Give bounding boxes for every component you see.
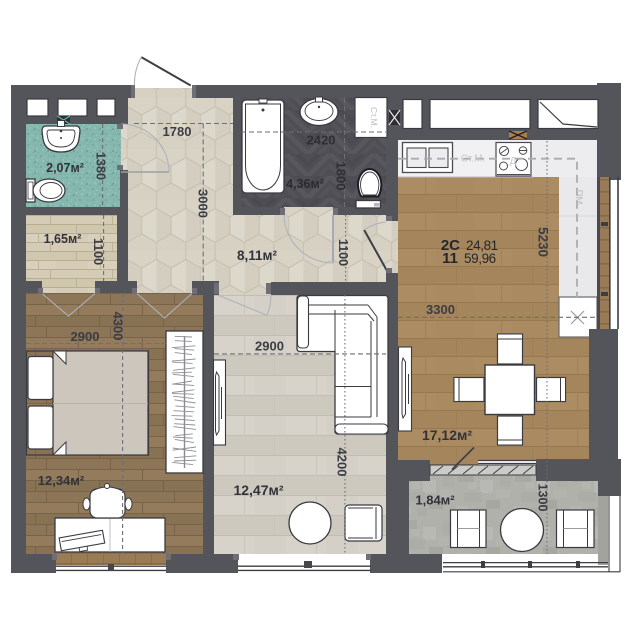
- svg-text:4,36м²: 4,36м²: [286, 177, 324, 191]
- svg-text:5230: 5230: [536, 227, 551, 257]
- svg-text:1100: 1100: [336, 239, 350, 266]
- svg-text:2420: 2420: [307, 133, 336, 148]
- svg-text:1300: 1300: [536, 484, 550, 512]
- svg-text:1800: 1800: [334, 162, 349, 191]
- svg-text:2,07м²: 2,07м²: [46, 161, 84, 175]
- svg-text:1,84м²: 1,84м²: [415, 493, 455, 508]
- svg-text:3300: 3300: [426, 302, 455, 317]
- svg-text:17,12м²: 17,12м²: [422, 427, 472, 443]
- svg-text:ПМ: ПМ: [573, 190, 584, 205]
- svg-text:Ст.М.: Ст.М.: [369, 107, 379, 128]
- svg-text:11: 11: [442, 250, 458, 267]
- svg-text:Ст.М.: Ст.М.: [461, 154, 486, 165]
- svg-text:1380: 1380: [94, 152, 108, 180]
- svg-text:4300: 4300: [111, 312, 126, 341]
- svg-text:4200: 4200: [335, 448, 350, 477]
- svg-text:12,34м²: 12,34м²: [38, 473, 85, 488]
- svg-text:1780: 1780: [163, 124, 192, 139]
- svg-text:12,47м²: 12,47м²: [233, 482, 283, 498]
- svg-text:2900: 2900: [255, 339, 284, 354]
- svg-text:59,96: 59,96: [464, 251, 496, 266]
- svg-text:1,65м²: 1,65м²: [44, 232, 82, 246]
- svg-text:Д: Д: [510, 156, 517, 167]
- svg-text:1100: 1100: [91, 238, 105, 265]
- svg-text:2900: 2900: [71, 329, 100, 344]
- svg-text:8,11м²: 8,11м²: [237, 248, 278, 263]
- svg-text:3000: 3000: [196, 189, 211, 218]
